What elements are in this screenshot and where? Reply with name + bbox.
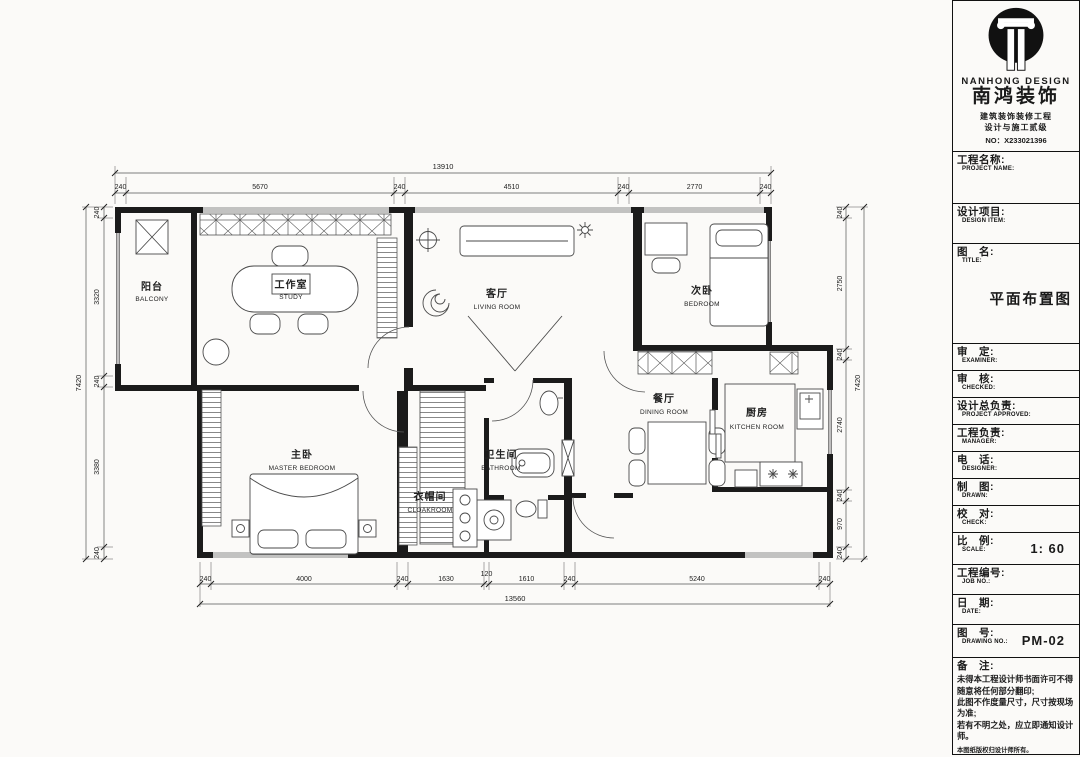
kitchen-flue xyxy=(770,352,798,374)
room-label-bathroom-en: BATHROOM xyxy=(481,465,520,472)
dim-label: 240 xyxy=(837,207,844,219)
laundry-shelf xyxy=(453,489,477,547)
ceiling-light xyxy=(416,228,440,252)
note-line: 师。 xyxy=(957,731,1075,742)
field-design-item: 设计项目: DESIGN ITEM: xyxy=(953,203,1079,243)
field-examiner: 审 定: EXAMINER: xyxy=(953,343,1079,370)
room-label-cloakroom-en: CLOAKROOM xyxy=(408,507,453,514)
balcony-washer xyxy=(136,220,168,254)
washing-machine xyxy=(477,500,511,540)
flue-box xyxy=(562,440,574,476)
room-label-cloakroom: 衣帽间 xyxy=(414,490,447,503)
dim-label: 240 xyxy=(397,576,409,583)
room-label-bathroom: 卫生间 xyxy=(485,448,518,461)
brand-cert-no: NO：X233021396 xyxy=(985,135,1046,146)
dim-label: 4510 xyxy=(504,184,520,191)
field-label-cn: 设计项目: xyxy=(957,206,1075,218)
dim-label: 5240 xyxy=(689,576,705,583)
bedroom-desk xyxy=(645,223,687,273)
field-title: 图 名: TITLE: 平面布置图 xyxy=(953,243,1079,343)
field-label-en: PROJECT APPROVED: xyxy=(962,412,1075,419)
field-label-cn: 制 图: xyxy=(957,481,1075,493)
note-line: 为准; xyxy=(957,708,1075,719)
room-label-study: 工作室 xyxy=(275,278,308,291)
dim-label: 240 xyxy=(760,184,772,191)
dim-label: 240 xyxy=(564,576,576,583)
dim-label: 240 xyxy=(819,576,831,583)
note-line: 此图不作度量尺寸，尺寸按现场 xyxy=(957,697,1075,708)
field-label-en: DESIGNER: xyxy=(962,466,1075,473)
notes-label: 备 注: xyxy=(957,660,1075,672)
room-label-balcony-en: BALCONY xyxy=(135,296,169,303)
dim-label: 240 xyxy=(618,184,630,191)
field-drawing-no: 图 号: DRAWING NO.: PM-02 xyxy=(953,624,1079,657)
dim-label: 240 xyxy=(94,207,101,219)
field-label-en: DRAWN: xyxy=(962,493,1075,500)
field-label-cn: 日 期: xyxy=(957,597,1075,609)
drawing-no-value: PM-02 xyxy=(1022,633,1065,648)
room-label-living-en: LIVING ROOM xyxy=(474,304,521,311)
dim-label: 970 xyxy=(837,518,844,530)
drawing-title-value: 平面布置图 xyxy=(990,288,1073,309)
dim-label: 240 xyxy=(837,490,844,502)
field-label-cn: 审 定: xyxy=(957,346,1075,358)
room-label-kitchen-en: KITCHEN ROOM xyxy=(730,424,784,431)
dim-label: 240 xyxy=(200,576,212,583)
field-label-cn: 工程名称: xyxy=(957,154,1075,166)
room-label-bedroom: 次卧 xyxy=(691,284,713,297)
field-date: 日 期: DATE: xyxy=(953,594,1079,624)
dim-label: 240 xyxy=(94,376,101,388)
toilet xyxy=(516,500,547,518)
field-label-cn: 审 核: xyxy=(957,373,1075,385)
field-label-cn: 工程编号: xyxy=(957,567,1075,579)
notes-fine-print: 本图纸版权归设计师所有。 xyxy=(957,745,1075,754)
field-label-cn: 校 对: xyxy=(957,508,1075,520)
room-label-study-en: STUDY xyxy=(279,294,303,301)
field-label-en: CHECK: xyxy=(962,520,1075,527)
dim-left-total: 7420 xyxy=(74,375,83,392)
field-project-name: 工程名称: PROJECT NAME: xyxy=(953,151,1079,203)
scale-value: 1: 60 xyxy=(1030,541,1065,556)
field-phone: 电 话: DESIGNER: xyxy=(953,451,1079,478)
note-line: 未得本工程设计师书面许可不得 xyxy=(957,674,1075,685)
dim-label: 3320 xyxy=(94,289,101,305)
dim-label: 120 xyxy=(481,571,493,578)
study-bookshelf xyxy=(377,238,397,338)
field-label-en: DATE: xyxy=(962,609,1075,616)
kitchen-stove xyxy=(735,462,802,487)
field-label-en: TITLE: xyxy=(962,258,1075,265)
field-label-cn: 电 话: xyxy=(957,454,1075,466)
field-label-en: PROJECT NAME: xyxy=(962,166,1075,173)
field-project-approved: 设计总负责: PROJECT APPROVED: xyxy=(953,397,1079,424)
kitchen-counter xyxy=(725,384,823,462)
room-label-master-en: MASTER BEDROOM xyxy=(269,465,336,472)
note-line: 若有不明之处，应立即通知设计 xyxy=(957,720,1075,731)
field-check: 校 对: CHECK: xyxy=(953,505,1079,532)
plant xyxy=(577,222,593,238)
bedroom-bed xyxy=(710,224,768,326)
brand-name-cn: 南鸿装饰 xyxy=(972,87,1060,108)
note-line: 随意将任何部分翻印; xyxy=(957,686,1075,697)
dim-label: 240 xyxy=(115,184,127,191)
study-desk xyxy=(203,246,358,365)
room-label-master: 主卧 xyxy=(291,448,313,461)
dim-label: 1610 xyxy=(519,576,535,583)
field-drawn: 制 图: DRAWN: xyxy=(953,478,1079,505)
field-job-no: 工程编号: JOB NO.: xyxy=(953,564,1079,594)
field-label-en: DESIGN ITEM: xyxy=(962,218,1075,225)
hall-closet xyxy=(638,351,712,374)
dim-bottom-total: 13560 xyxy=(505,594,526,603)
bathroom-sink xyxy=(540,391,563,415)
dim-label: 4000 xyxy=(296,576,312,583)
brand-cert-line2: 设计与施工贰级 xyxy=(985,122,1048,133)
master-wardrobe xyxy=(202,390,221,526)
dim-label: 2770 xyxy=(687,184,703,191)
field-label-en: MANAGER: xyxy=(962,439,1075,446)
room-label-dining-en: DINING ROOM xyxy=(640,409,688,416)
field-checked: 审 核: CHECKED: xyxy=(953,370,1079,397)
dim-label: 240 xyxy=(837,349,844,361)
living-arrow xyxy=(468,316,562,371)
notes-block: 备 注: 未得本工程设计师书面许可不得 随意将任何部分翻印; 此图不作度量尺寸，… xyxy=(953,657,1079,757)
dim-label: 240 xyxy=(837,547,844,559)
bathtub xyxy=(512,449,554,477)
field-label-cn: 设计总负责: xyxy=(957,400,1075,412)
dim-right-total: 7420 xyxy=(853,375,862,392)
dim-label: 3380 xyxy=(94,459,101,475)
title-block: NANHONG DESIGN 南鸿装饰 建筑装饰装修工程 设计与施工贰级 NO：… xyxy=(952,0,1080,755)
brand-cert-line1: 建筑装饰装修工程 xyxy=(980,111,1052,122)
room-label-bedroom-en: BEDROOM xyxy=(684,301,720,308)
column-logo-icon xyxy=(981,5,1051,75)
room-label-balcony: 阳台 xyxy=(141,280,163,293)
logo-block: NANHONG DESIGN 南鸿装饰 建筑装饰装修工程 设计与施工贰级 NO：… xyxy=(953,1,1079,151)
field-label-en: JOB NO.: xyxy=(962,579,1075,586)
dim-label: 5670 xyxy=(252,184,268,191)
field-label-cn: 图 名: xyxy=(957,246,1075,258)
study-closet xyxy=(200,214,391,235)
rug-spiral xyxy=(423,290,449,316)
dim-label: 240 xyxy=(94,547,101,559)
field-label-en: EXAMINER: xyxy=(962,358,1075,365)
dim-label: 2750 xyxy=(837,276,844,292)
field-label-en: CHECKED: xyxy=(962,385,1075,392)
room-label-dining: 餐厅 xyxy=(652,392,675,405)
dim-top-total: 13910 xyxy=(433,162,454,171)
drawing-sheet: 13910 240 5670 240 4510 240 2770 240 240… xyxy=(0,0,1080,757)
dim-label: 1630 xyxy=(438,576,454,583)
dim-label: 240 xyxy=(394,184,406,191)
field-manager: 工程负责: MANAGER: xyxy=(953,424,1079,451)
tv-cabinet xyxy=(460,226,574,256)
dim-label: 2740 xyxy=(837,417,844,433)
floor-plan-svg: 13910 240 5670 240 4510 240 2770 240 240… xyxy=(0,0,950,757)
field-label-cn: 工程负责: xyxy=(957,427,1075,439)
field-scale: 比 例: SCALE: 1: 60 xyxy=(953,532,1079,564)
notes-lines: 未得本工程设计师书面许可不得 随意将任何部分翻印; 此图不作度量尺寸，尺寸按现场… xyxy=(957,674,1075,743)
room-label-living: 客厅 xyxy=(485,287,508,300)
master-bed xyxy=(232,474,376,554)
room-label-kitchen: 厨房 xyxy=(746,406,768,419)
